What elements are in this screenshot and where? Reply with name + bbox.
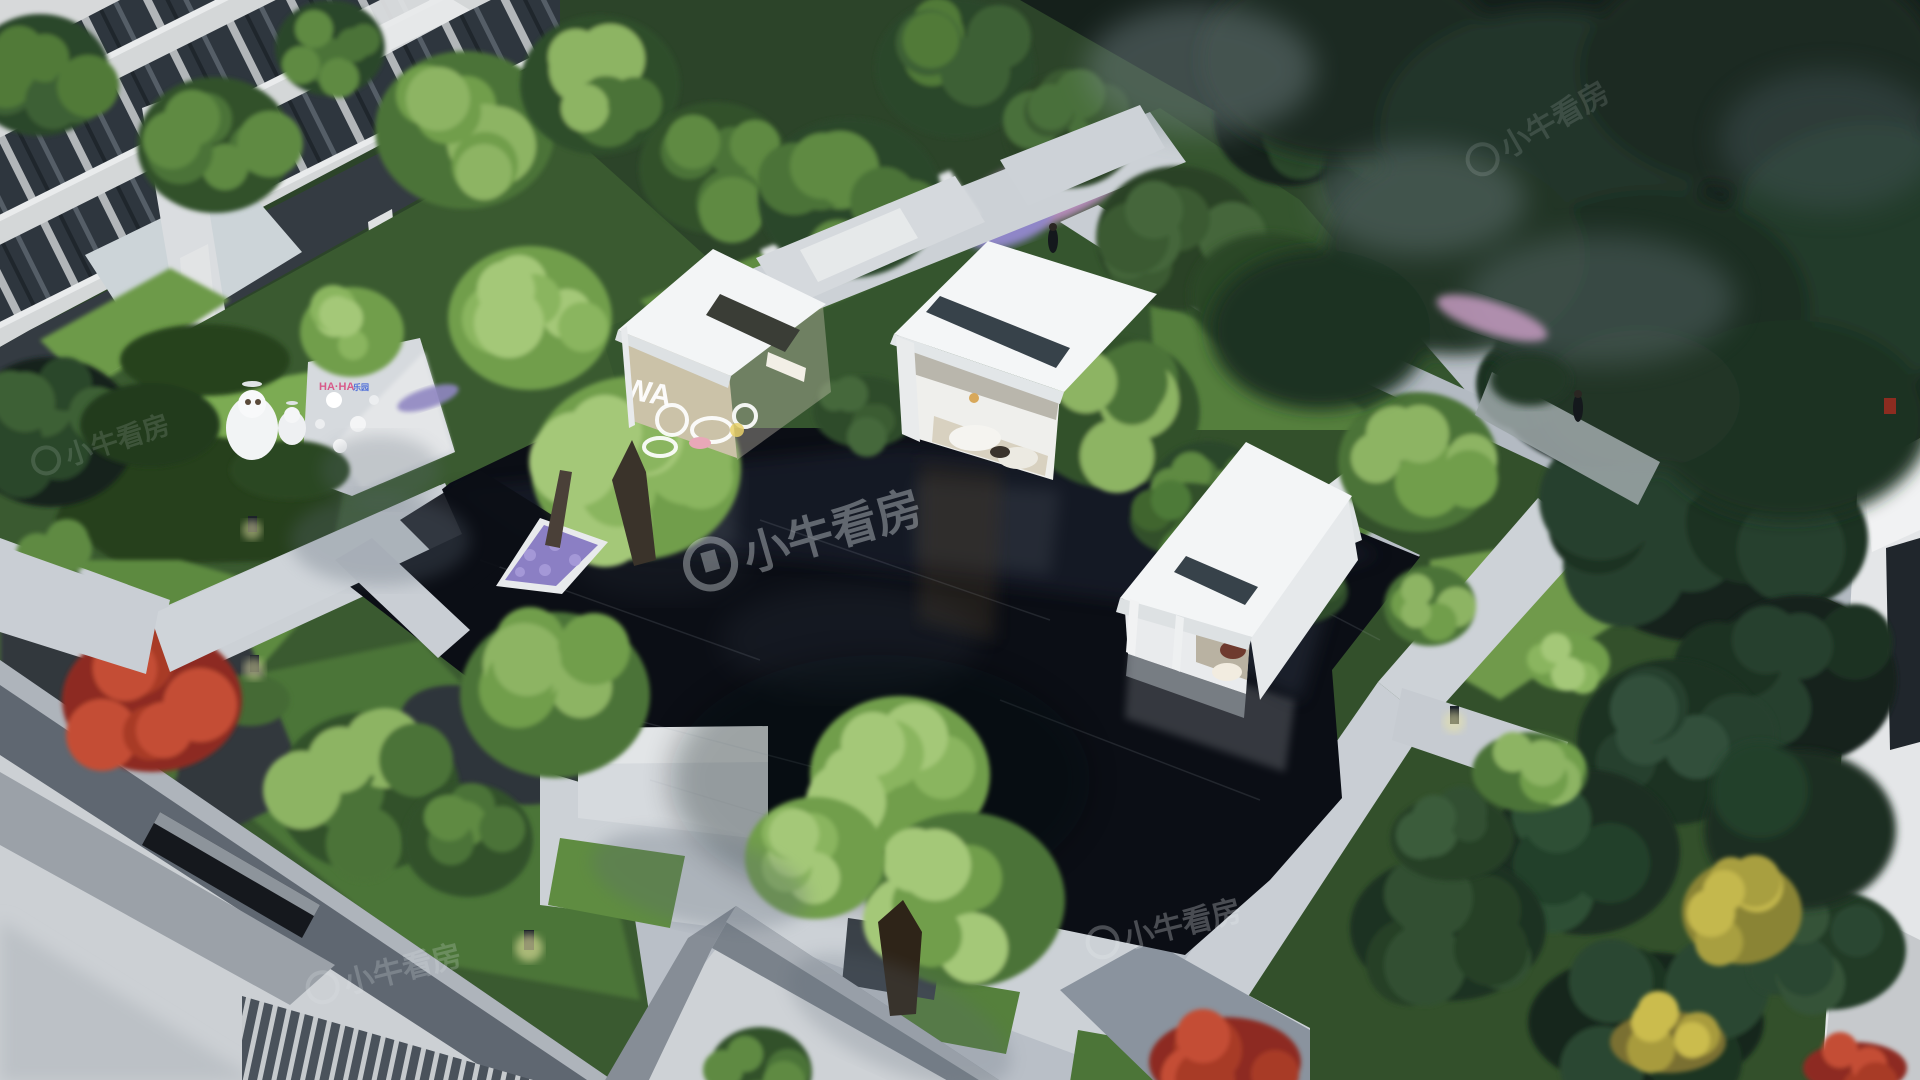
- svg-text:HA·HA: HA·HA: [319, 381, 354, 393]
- svg-text:乐园: 乐园: [353, 382, 369, 392]
